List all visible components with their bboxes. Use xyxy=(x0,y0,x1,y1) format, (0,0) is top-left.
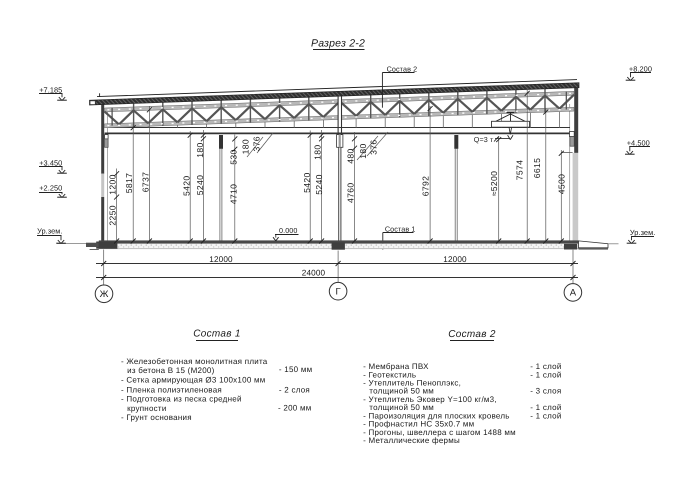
svg-text:крупности: крупности xyxy=(127,404,166,413)
svg-text:+7.185: +7.185 xyxy=(39,85,62,94)
svg-text:5240: 5240 xyxy=(195,175,205,196)
svg-text:480: 480 xyxy=(346,148,356,163)
svg-text:6615: 6615 xyxy=(532,158,542,179)
svg-text:0.000: 0.000 xyxy=(279,226,298,235)
svg-text:5240: 5240 xyxy=(314,174,324,195)
svg-text:- 200 мм: - 200 мм xyxy=(278,404,311,413)
svg-text:Ур.зем.: Ур.зем. xyxy=(630,228,655,237)
svg-text:6792: 6792 xyxy=(421,176,431,197)
svg-text:7574: 7574 xyxy=(515,160,525,181)
svg-text:+4.500: +4.500 xyxy=(627,138,650,147)
svg-text:24000: 24000 xyxy=(302,268,326,277)
svg-text:180: 180 xyxy=(195,142,205,157)
svg-text:Q=3 т: Q=3 т xyxy=(474,135,494,144)
svg-text:- Сетка армирующая Ø3 100х100: - Сетка армирующая Ø3 100х100 мм xyxy=(121,375,265,384)
svg-text:- Пленка полиэтиленовая: - Пленка полиэтиленовая xyxy=(121,385,222,394)
svg-text:- Металлические фермы: - Металлические фермы xyxy=(363,436,460,445)
svg-text:- Подготовка из песка средней: - Подготовка из песка средней xyxy=(121,395,242,404)
svg-text:5817: 5817 xyxy=(124,173,134,194)
svg-text:180: 180 xyxy=(358,143,368,158)
svg-text:6737: 6737 xyxy=(140,172,150,193)
svg-text:4500: 4500 xyxy=(557,174,567,195)
svg-text:376: 376 xyxy=(251,136,261,151)
svg-text:- Грунт основания: - Грунт основания xyxy=(121,413,192,422)
svg-text:376: 376 xyxy=(368,140,378,155)
svg-text:Г: Г xyxy=(336,287,341,298)
svg-text:5420: 5420 xyxy=(302,172,312,193)
svg-text:+2.250: +2.250 xyxy=(39,184,62,193)
svg-text:12000: 12000 xyxy=(209,255,233,264)
svg-text:180: 180 xyxy=(241,139,251,154)
svg-text:Ур.зем.: Ур.зем. xyxy=(37,227,62,236)
svg-text:- 150 мм: - 150 мм xyxy=(279,365,312,374)
svg-text:≈5200: ≈5200 xyxy=(489,171,499,197)
svg-text:- 3 слоя: - 3 слоя xyxy=(530,387,561,396)
svg-text:530: 530 xyxy=(228,149,238,164)
svg-text:А: А xyxy=(570,288,577,299)
svg-text:Состав 2: Состав 2 xyxy=(448,329,496,340)
svg-text:4760: 4760 xyxy=(346,182,356,203)
svg-text:4710: 4710 xyxy=(228,184,238,205)
svg-text:- 1 слой: - 1 слой xyxy=(530,370,561,379)
svg-text:1200: 1200 xyxy=(108,174,118,195)
svg-text:- 2 слоя: - 2 слоя xyxy=(279,385,310,394)
svg-text:из бетона В 15 (М200): из бетона В 15 (М200) xyxy=(127,366,215,375)
svg-text:2250: 2250 xyxy=(108,205,118,226)
svg-text:Разрез 2-2: Разрез 2-2 xyxy=(311,38,365,50)
svg-text:12000: 12000 xyxy=(443,255,467,264)
svg-text:Состав 1: Состав 1 xyxy=(193,329,241,340)
svg-text:+3.450: +3.450 xyxy=(39,158,62,167)
svg-text:+8.200: +8.200 xyxy=(629,64,652,73)
svg-text:180: 180 xyxy=(313,145,323,160)
svg-text:- 1 слой: - 1 слой xyxy=(530,411,561,420)
svg-text:Ж: Ж xyxy=(100,289,109,300)
svg-text:5420: 5420 xyxy=(181,175,191,196)
svg-text:- Железобетонная монолитная п: - Железобетонная монолитная плита xyxy=(121,357,268,366)
